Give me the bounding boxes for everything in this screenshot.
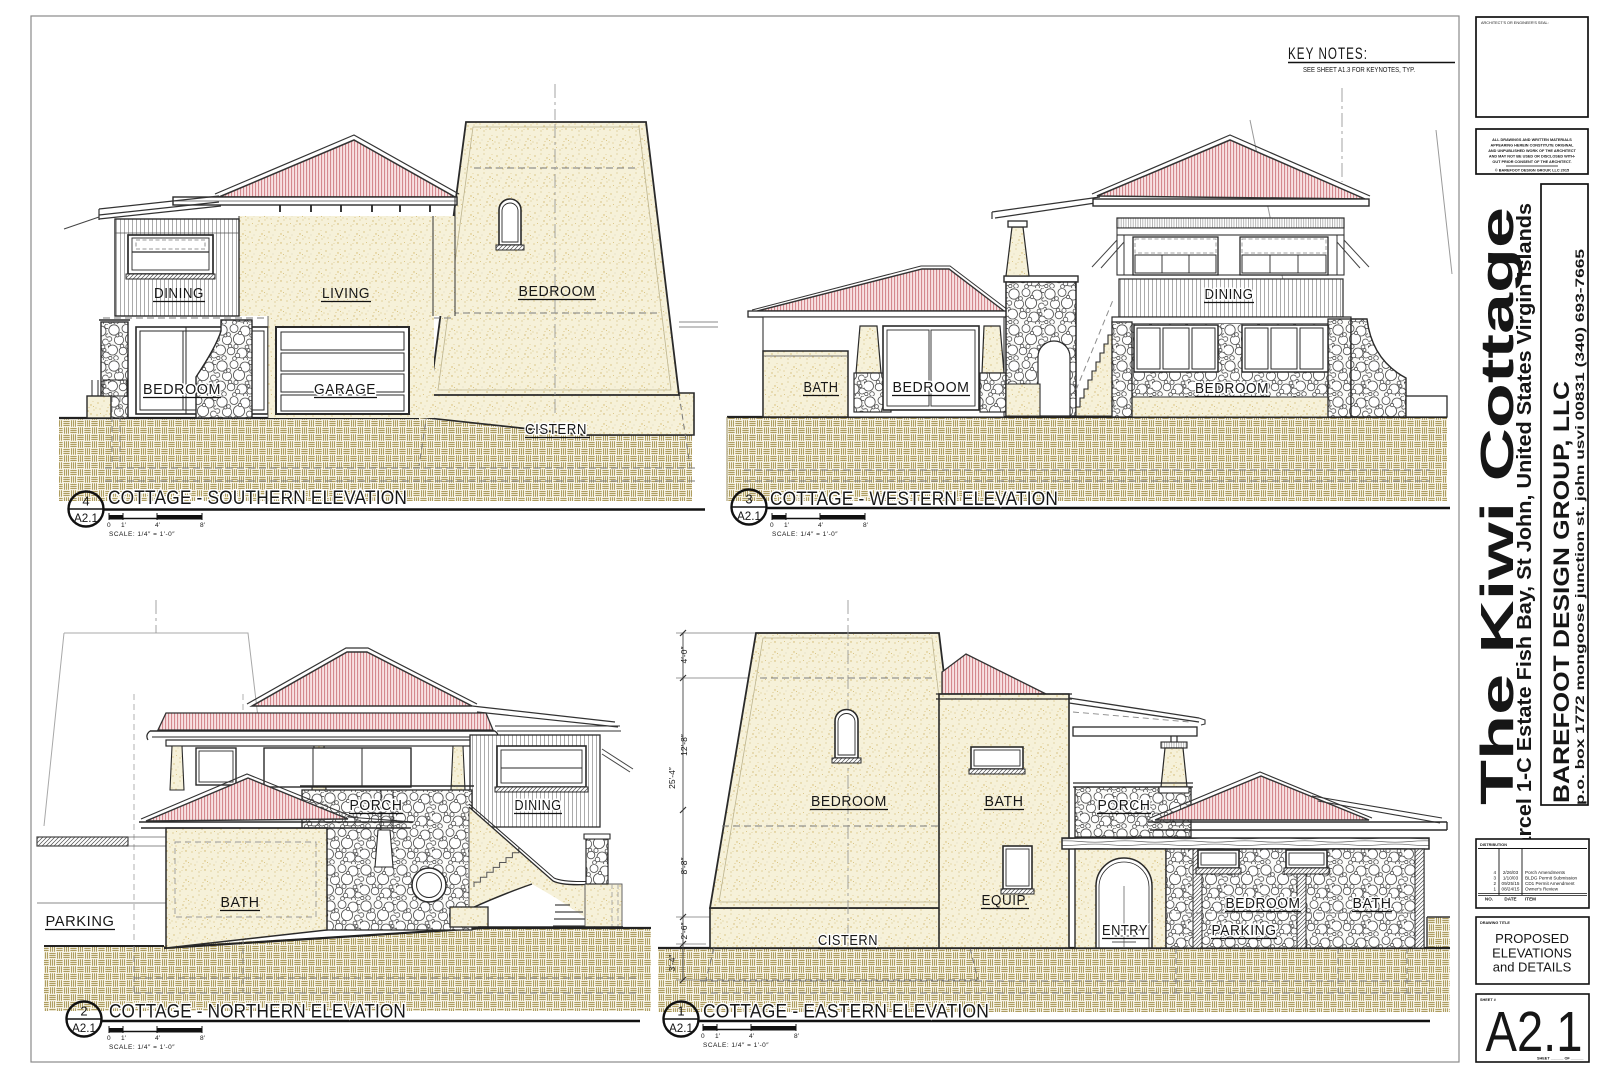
svg-text:SCALE: 1/4″ = 1′-0″: SCALE: 1/4″ = 1′-0″ (703, 1042, 769, 1049)
svg-text:DINING: DINING (515, 797, 562, 814)
svg-text:1′: 1′ (121, 522, 127, 529)
svg-text:1/10/03: 1/10/03 (1503, 876, 1519, 881)
svg-text:4′-0″: 4′-0″ (679, 647, 689, 664)
svg-text:4: 4 (82, 494, 89, 509)
svg-text:BLDG Permit Submission: BLDG Permit Submission (1525, 876, 1578, 881)
svg-text:SHEET ______ OF ______: SHEET ______ OF ______ (1537, 1057, 1584, 1061)
svg-text:BEDROOM: BEDROOM (811, 793, 887, 810)
svg-text:LIVING: LIVING (322, 285, 370, 302)
svg-text:0: 0 (770, 522, 774, 529)
svg-text:A2.1: A2.1 (1486, 1000, 1583, 1064)
svg-text:2/26/03: 2/26/03 (1503, 870, 1519, 875)
svg-text:8′: 8′ (200, 1035, 206, 1042)
svg-text:3: 3 (1493, 876, 1496, 881)
svg-text:BEDROOM: BEDROOM (893, 379, 970, 396)
svg-text:BEDROOM: BEDROOM (1195, 380, 1269, 397)
svg-text:OUT PRIOR CONSENT OF THE ARCHI: OUT PRIOR CONSENT OF THE ARCHITECT. (1492, 160, 1571, 164)
svg-text:BATH: BATH (985, 793, 1024, 810)
svg-text:BEDROOM: BEDROOM (1226, 895, 1301, 912)
svg-text:1: 1 (1493, 887, 1496, 892)
svg-text:CISTERN: CISTERN (818, 932, 878, 949)
svg-text:A2.1: A2.1 (737, 509, 761, 523)
svg-text:AND MAY NOT BE USED OR DISCLOS: AND MAY NOT BE USED OR DISCLOSED WITH- (1489, 155, 1576, 159)
svg-text:BEDROOM: BEDROOM (143, 381, 221, 398)
svg-text:ENTRY: ENTRY (1102, 922, 1148, 939)
svg-text:ITEM: ITEM (1525, 897, 1536, 902)
svg-text:SEE SHEET A1.3 FOR KEYNOTES, T: SEE SHEET A1.3 FOR KEYNOTES, TYP. (1303, 65, 1415, 74)
svg-text:ARCHITECT'S OR ENGINEER'S SEAL: ARCHITECT'S OR ENGINEER'S SEAL: (1481, 21, 1549, 25)
svg-text:2: 2 (1493, 881, 1496, 886)
svg-text:PARKING: PARKING (1212, 922, 1277, 939)
svg-text:ELEVATIONS: ELEVATIONS (1492, 946, 1572, 961)
svg-text:PROPOSED: PROPOSED (1495, 931, 1569, 946)
svg-text:8′: 8′ (863, 522, 869, 529)
svg-text:DISTRIBUTION: DISTRIBUTION (1480, 843, 1507, 847)
svg-text:1: 1 (677, 1004, 684, 1019)
svg-text:CISTERN: CISTERN (525, 421, 587, 438)
svg-text:DINING: DINING (154, 285, 204, 302)
svg-text:12′-8″: 12′-8″ (679, 734, 689, 756)
svg-text:A2.1: A2.1 (72, 1021, 96, 1035)
svg-text:KEY NOTES:: KEY NOTES: (1288, 44, 1368, 63)
svg-text:PORCH: PORCH (350, 797, 403, 814)
svg-text:and DETAILS: and DETAILS (1493, 960, 1572, 975)
svg-text:COTTAGE - NORTHERN ELEVATION: COTTAGE - NORTHERN ELEVATION (109, 1002, 406, 1023)
svg-text:4′: 4′ (749, 1033, 755, 1040)
svg-text:1′: 1′ (784, 522, 790, 529)
svg-text:2′-6″: 2′-6″ (679, 923, 689, 940)
svg-text:3′-4″: 3′-4″ (667, 955, 677, 972)
svg-text:GARAGE: GARAGE (314, 381, 376, 398)
svg-text:1′: 1′ (121, 1035, 127, 1042)
svg-text:BATH: BATH (221, 894, 260, 911)
svg-text:BEDROOM: BEDROOM (519, 283, 596, 300)
svg-text:COTTAGE - WESTERN ELEVATION: COTTAGE - WESTERN ELEVATION (770, 489, 1058, 510)
svg-text:p.o. box 1772 mongoose junctio: p.o. box 1772 mongoose junction st. john… (1573, 249, 1587, 805)
svg-text:4′: 4′ (155, 1035, 161, 1042)
svg-text:BATH: BATH (1353, 895, 1392, 912)
svg-text:BATH: BATH (804, 379, 839, 396)
svg-text:DATE: DATE (1504, 897, 1516, 902)
svg-text:08/24/15: 08/24/15 (1502, 887, 1520, 892)
svg-text:Porch Amendments: Porch Amendments (1525, 870, 1566, 875)
svg-text:A2.1: A2.1 (669, 1021, 693, 1035)
svg-text:0: 0 (701, 1033, 705, 1040)
svg-text:1′: 1′ (715, 1033, 721, 1040)
svg-text:4: 4 (1493, 870, 1496, 875)
svg-text:APPEARING HEREIN CONSTITUTE OR: APPEARING HEREIN CONSTITUTE ORIGINAL (1491, 144, 1575, 148)
svg-text:A2.1: A2.1 (74, 511, 98, 525)
svg-text:3: 3 (745, 492, 752, 507)
svg-text:DINING: DINING (1205, 286, 1254, 303)
svg-text:09/25/15: 09/25/15 (1502, 881, 1520, 886)
svg-text:Parcel 1-C Estate Fish Bay, St: Parcel 1-C Estate Fish Bay, St John, Uni… (1514, 203, 1536, 863)
svg-text:SCALE: 1/4″ = 1′-0″: SCALE: 1/4″ = 1′-0″ (772, 531, 838, 538)
svg-text:2: 2 (80, 1004, 87, 1019)
svg-text:PORCH: PORCH (1098, 797, 1151, 814)
svg-text:8′: 8′ (794, 1033, 800, 1040)
svg-text:DRAWING TITLE: DRAWING TITLE (1480, 921, 1510, 925)
svg-text:8′-8″: 8′-8″ (679, 858, 689, 875)
svg-text:0: 0 (107, 1035, 111, 1042)
svg-text:BAREFOOT DESIGN GROUP, LLC: BAREFOOT DESIGN GROUP, LLC (1549, 381, 1574, 803)
svg-text:© BAREFOOT DESIGN GROUP, LLC 2: © BAREFOOT DESIGN GROUP, LLC 2015 (1495, 169, 1569, 173)
svg-text:ALL DRAWINGS AND WRITTEN MATER: ALL DRAWINGS AND WRITTEN MATERIALS (1492, 138, 1572, 142)
svg-text:SCALE: 1/4″ = 1′-0″: SCALE: 1/4″ = 1′-0″ (109, 531, 175, 538)
svg-text:8′: 8′ (200, 522, 206, 529)
svg-text:CD1 Permit Amendment: CD1 Permit Amendment (1525, 881, 1575, 886)
svg-text:COTTAGE - SOUTHERN ELEVATION: COTTAGE - SOUTHERN ELEVATION (108, 488, 407, 509)
svg-text:Owner's Review: Owner's Review (1525, 887, 1559, 892)
svg-text:EQUIP.: EQUIP. (982, 892, 1029, 909)
svg-text:COTTAGE - EASTERN ELEVATION: COTTAGE - EASTERN ELEVATION (703, 1002, 989, 1023)
svg-text:AND UNPUBLISHED WORK OF THE AR: AND UNPUBLISHED WORK OF THE ARCHITECT (1488, 149, 1576, 153)
svg-text:4′: 4′ (155, 522, 161, 529)
svg-text:0: 0 (107, 522, 111, 529)
svg-text:4′: 4′ (818, 522, 824, 529)
svg-text:PARKING: PARKING (46, 913, 115, 930)
svg-text:25′-4″: 25′-4″ (667, 767, 677, 789)
svg-text:SCALE: 1/4″ = 1′-0″: SCALE: 1/4″ = 1′-0″ (109, 1044, 175, 1051)
svg-text:NO.: NO. (1485, 897, 1493, 902)
